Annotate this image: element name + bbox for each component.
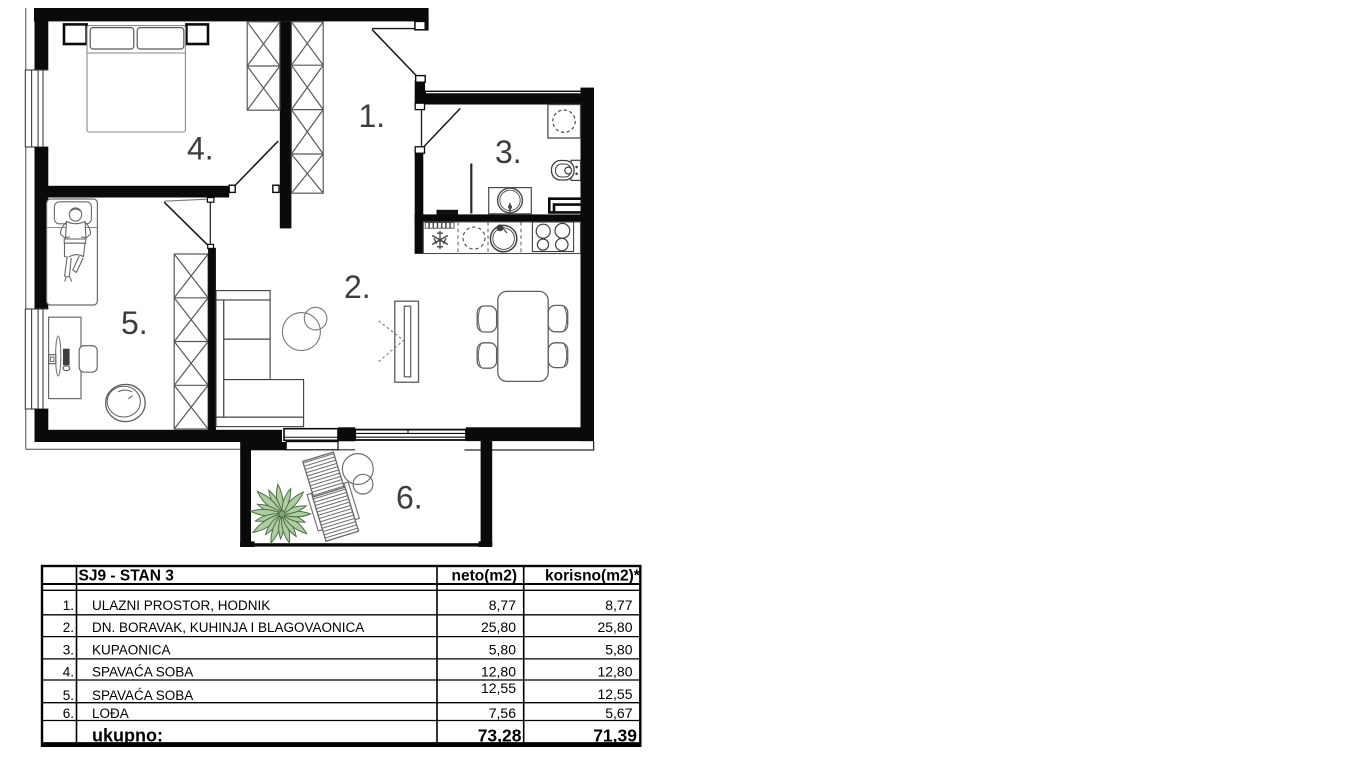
svg-text:neto(m2): neto(m2) xyxy=(452,568,517,585)
svg-text:1.: 1. xyxy=(359,98,386,134)
svg-text:12,80: 12,80 xyxy=(481,664,516,680)
svg-text:5,67: 5,67 xyxy=(605,705,632,721)
svg-text:25,80: 25,80 xyxy=(481,619,516,635)
svg-text:1.: 1. xyxy=(63,598,74,613)
svg-text:3.: 3. xyxy=(495,134,522,170)
svg-text:2.: 2. xyxy=(63,620,74,635)
svg-text:8,77: 8,77 xyxy=(605,597,632,613)
svg-text:SPAVAĆA SOBA: SPAVAĆA SOBA xyxy=(92,665,193,680)
svg-text:SJ9 - STAN 3: SJ9 - STAN 3 xyxy=(79,568,175,585)
svg-text:2.: 2. xyxy=(344,269,371,305)
svg-text:4.: 4. xyxy=(63,665,74,680)
svg-text:5.: 5. xyxy=(63,688,74,703)
svg-text:12,80: 12,80 xyxy=(597,664,632,680)
svg-text:3.: 3. xyxy=(63,643,74,658)
svg-text:ULAZNI PROSTOR, HODNIK: ULAZNI PROSTOR, HODNIK xyxy=(92,598,270,613)
svg-text:6.: 6. xyxy=(63,706,74,721)
svg-text:12,55: 12,55 xyxy=(481,680,516,696)
svg-text:6.: 6. xyxy=(396,480,423,516)
svg-text:KUPAONICA: KUPAONICA xyxy=(92,643,171,658)
svg-text:5,80: 5,80 xyxy=(489,642,516,658)
svg-text:8,77: 8,77 xyxy=(489,597,516,613)
svg-text:ukupno:: ukupno: xyxy=(92,726,163,746)
svg-text:7,56: 7,56 xyxy=(489,705,516,721)
svg-text:73,28: 73,28 xyxy=(478,726,522,746)
svg-text:DN. BORAVAK, KUHINJA I BLAGOVA: DN. BORAVAK, KUHINJA I BLAGOVAONICA xyxy=(92,620,364,635)
svg-text:korisno(m2)*: korisno(m2)* xyxy=(545,568,641,585)
svg-text:12,55: 12,55 xyxy=(597,686,632,702)
svg-text:5,80: 5,80 xyxy=(605,642,632,658)
svg-text:LOĐA: LOĐA xyxy=(92,706,129,721)
svg-text:71,39: 71,39 xyxy=(593,726,637,746)
svg-text:SPAVAĆA SOBA: SPAVAĆA SOBA xyxy=(92,688,193,703)
svg-text:4.: 4. xyxy=(187,131,214,167)
svg-text:5.: 5. xyxy=(121,305,148,341)
svg-text:25,80: 25,80 xyxy=(597,619,632,635)
